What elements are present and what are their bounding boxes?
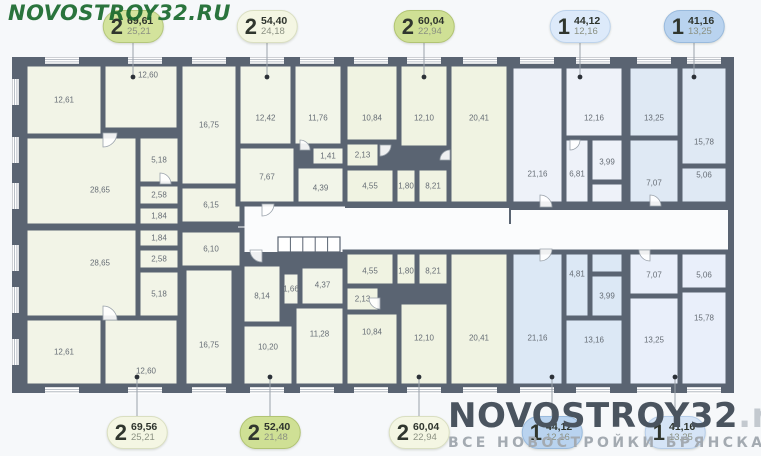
living-area: 25,21 <box>131 433 157 443</box>
badge-areas: 44,1212,16 <box>574 16 600 38</box>
room-area-label: 5,18 <box>151 290 167 299</box>
room-area-label: 8,14 <box>254 292 270 301</box>
window-glass <box>637 387 671 394</box>
room-area-label: 13,25 <box>644 336 665 345</box>
window <box>192 387 226 394</box>
window-glass <box>576 57 610 64</box>
apt-top-5: 13,2515,787,075,06 <box>628 66 728 204</box>
entrance-dot <box>135 375 140 380</box>
room-area-label: 6,10 <box>203 245 219 254</box>
room[interactable] <box>511 66 564 204</box>
rooms-count: 2 <box>115 422 127 444</box>
window <box>407 387 441 394</box>
window <box>12 79 18 105</box>
floor-plan: 12,6112,6028,655,182,581,846,1516,7512,4… <box>0 0 761 456</box>
room-area-label: 7,07 <box>646 271 662 280</box>
entrance-dot <box>265 75 270 80</box>
apartment-badge[interactable]: 141,1613,25 <box>664 10 725 43</box>
apartment-badge[interactable]: 254,4024,18 <box>237 10 298 43</box>
window-glass <box>12 287 18 313</box>
room-area-label: 5,06 <box>696 171 712 180</box>
window-glass <box>463 387 497 394</box>
window-glass <box>45 387 79 394</box>
badge-areas: 60,0422,94 <box>418 16 444 38</box>
window <box>520 57 554 64</box>
window <box>128 387 162 394</box>
room[interactable] <box>680 66 728 166</box>
room[interactable] <box>345 64 399 142</box>
room-area-label: 13,16 <box>584 336 605 345</box>
room-area-label: 1,66 <box>283 285 299 294</box>
window <box>45 387 79 394</box>
window <box>463 387 497 394</box>
living-area: 22,94 <box>413 433 439 443</box>
room[interactable] <box>293 64 343 146</box>
rooms-count: 2 <box>248 422 260 444</box>
room[interactable] <box>184 268 234 386</box>
apartment-badge[interactable]: 252,4021,48 <box>240 416 301 449</box>
window <box>687 57 721 64</box>
room[interactable] <box>564 66 624 138</box>
room-area-label: 3,99 <box>599 292 615 301</box>
living-area: 22,94 <box>418 27 444 37</box>
badge-areas: 60,0422,94 <box>413 422 439 444</box>
room-area-label: 12,42 <box>255 114 276 123</box>
window-glass <box>354 57 388 64</box>
room[interactable] <box>294 306 345 386</box>
window-glass <box>637 57 671 64</box>
entrance-dot <box>550 375 555 380</box>
room[interactable] <box>680 290 728 386</box>
window <box>192 57 226 64</box>
apt-top-3: 10,8412,1020,412,134,551,808,21 <box>345 64 509 204</box>
room-area-label: 20,41 <box>469 114 490 123</box>
window <box>12 137 18 163</box>
apt-top-4: 21,1612,166,813,99 <box>511 66 624 204</box>
room-area-label: 2,13 <box>355 295 371 304</box>
room[interactable] <box>345 312 399 386</box>
window-glass <box>520 57 554 64</box>
window-glass <box>520 387 554 394</box>
apt-bottom-2: 16,758,141,664,3710,2011,28 <box>184 264 345 386</box>
room[interactable] <box>449 252 509 386</box>
room-area-label: 1,84 <box>151 234 167 243</box>
window-glass <box>407 387 441 394</box>
window-glass <box>192 387 226 394</box>
window <box>637 57 671 64</box>
window <box>45 57 79 64</box>
room-area-label: 1,80 <box>398 267 414 276</box>
room-area-label: 6,15 <box>203 201 219 210</box>
rooms-count: 2 <box>245 16 257 38</box>
apartment-badge[interactable]: 269,5625,21 <box>107 416 168 449</box>
window <box>12 183 18 209</box>
room-area-label: 28,65 <box>90 186 111 195</box>
room-area-label: 10,84 <box>362 114 383 123</box>
room-area-label: 11,76 <box>308 114 328 123</box>
window <box>576 387 610 394</box>
room[interactable] <box>564 318 624 386</box>
room-area-label: 21,16 <box>527 170 548 179</box>
room-area-label: 20,41 <box>469 334 490 343</box>
apt-bottom-5: 7,075,0613,2515,78 <box>628 252 728 386</box>
window-glass <box>192 57 226 64</box>
apt-bottom-4: 21,164,813,9913,16 <box>511 252 624 386</box>
entrance-dot <box>692 75 697 80</box>
entrance-dot <box>422 75 427 80</box>
room-area-label: 11,28 <box>310 330 330 339</box>
entrance-dot <box>578 75 583 80</box>
badge-areas: 52,4021,48 <box>264 422 290 444</box>
room-area-label: 12,61 <box>54 348 75 357</box>
apartment-badge[interactable]: 260,0422,94 <box>389 416 450 449</box>
window-glass <box>463 57 497 64</box>
window <box>12 287 18 313</box>
apt-bottom-3: 4,551,808,212,1310,8412,1020,41 <box>345 252 509 386</box>
room-area-label: 7,07 <box>646 179 662 188</box>
window-glass <box>300 387 334 394</box>
room-area-label: 15,78 <box>694 314 715 323</box>
rooms-count: 1 <box>558 16 570 38</box>
corridor <box>345 208 509 252</box>
room-area-label: 1,41 <box>320 152 336 161</box>
window <box>463 57 497 64</box>
room[interactable] <box>399 302 449 386</box>
window-glass <box>12 137 18 163</box>
room-area-label: 15,78 <box>694 138 715 147</box>
rooms-count: 2 <box>402 16 414 38</box>
window-glass <box>300 57 334 64</box>
room-area-label: 12,60 <box>138 71 159 80</box>
living-area: 13,25 <box>688 27 714 37</box>
window-glass <box>12 183 18 209</box>
apartment-badge[interactable]: 260,0422,94 <box>394 10 455 43</box>
room-area-label: 12,61 <box>54 96 75 105</box>
window <box>300 57 334 64</box>
window <box>354 387 388 394</box>
window <box>300 387 334 394</box>
room-area-label: 3,99 <box>599 158 615 167</box>
room-area-label: 1,80 <box>398 182 414 191</box>
apt-top-2: 16,7512,4211,767,671,414,39 <box>180 64 345 204</box>
corridor <box>511 210 728 252</box>
room-area-label: 12,10 <box>414 114 435 123</box>
room-area-label: 8,21 <box>425 267 441 276</box>
window-glass <box>576 387 610 394</box>
room-area-label: 4,55 <box>362 182 378 191</box>
room-area-label: 5,06 <box>696 271 712 280</box>
room-area-label: 1,84 <box>151 212 167 221</box>
room[interactable] <box>25 228 138 318</box>
room-area-label: 6,81 <box>569 170 585 179</box>
room[interactable] <box>564 252 590 318</box>
living-area: 21,48 <box>264 433 290 443</box>
room[interactable] <box>511 252 564 386</box>
watermark-subtitle: ВСЕ НОВОСТРОЙКИ БРЯНСКА <box>448 436 761 450</box>
room-area-label: 4,37 <box>315 281 331 290</box>
room-area-label: 12,10 <box>414 334 435 343</box>
room-area-label: 12,60 <box>136 367 157 376</box>
rooms-count: 1 <box>672 16 684 38</box>
window-glass <box>250 387 284 394</box>
room[interactable] <box>628 66 680 138</box>
entrance-dot <box>417 375 422 380</box>
room-area-label: 4,55 <box>362 267 378 276</box>
room[interactable] <box>25 136 138 226</box>
room-area-label: 13,25 <box>644 114 665 123</box>
room-area-label: 8,21 <box>425 182 441 191</box>
window <box>12 245 18 271</box>
watermark-bottom: NOVOSTROY32.ru ВСЕ НОВОСТРОЙКИ БРЯНСКА <box>448 399 761 450</box>
window <box>520 387 554 394</box>
window-glass <box>128 387 162 394</box>
room[interactable] <box>449 64 509 204</box>
window-glass <box>12 339 18 365</box>
room-area-label: 7,67 <box>259 173 275 182</box>
window-glass <box>687 57 721 64</box>
window-glass <box>354 387 388 394</box>
badge-areas: 41,1613,25 <box>688 16 714 38</box>
window <box>12 339 18 365</box>
room-area-label: 2,58 <box>151 191 167 200</box>
room-area-label: 21,16 <box>527 334 548 343</box>
window <box>576 57 610 64</box>
room-area-label: 16,75 <box>199 341 220 350</box>
room-area-label: 2,13 <box>355 151 371 160</box>
room[interactable] <box>628 138 680 204</box>
living-area: 24,18 <box>261 27 287 37</box>
window <box>250 387 284 394</box>
room-area-label: 16,75 <box>199 121 220 130</box>
window <box>637 387 671 394</box>
watermark-logo-suffix: .ru <box>738 396 761 436</box>
watermark-top: NOVOSTROY32.RU <box>8 1 231 25</box>
window-glass <box>12 79 18 105</box>
room-area-label: 4,39 <box>313 184 329 193</box>
entrance-dot <box>131 75 136 80</box>
living-area: 12,16 <box>574 27 600 37</box>
entrance-dot <box>268 375 273 380</box>
window-glass <box>12 245 18 271</box>
room-area-label: 12,16 <box>584 114 605 123</box>
room-area-label: 10,84 <box>362 328 383 337</box>
room-area-label: 10,20 <box>258 343 279 352</box>
watermark-logo: NOVOSTROY32.ru <box>448 399 761 433</box>
stairs <box>278 237 340 252</box>
entrance-dot <box>673 375 678 380</box>
living-area: 25,21 <box>127 27 153 37</box>
badge-areas: 69,5625,21 <box>131 422 157 444</box>
room-area-label: 5,18 <box>151 156 167 165</box>
room-area-label: 4,81 <box>569 270 585 279</box>
apartment-badge[interactable]: 144,1212,16 <box>550 10 611 43</box>
window <box>687 387 721 394</box>
room-area-label: 2,58 <box>151 255 167 264</box>
room[interactable] <box>103 318 179 386</box>
floorplan-page: 12,6112,6028,655,182,581,846,1516,7512,4… <box>0 0 761 456</box>
room-area-label: 28,65 <box>90 259 111 268</box>
window-glass <box>687 387 721 394</box>
window-glass <box>45 57 79 64</box>
window <box>354 57 388 64</box>
rooms-count: 2 <box>397 422 409 444</box>
badge-areas: 54,4024,18 <box>261 16 287 38</box>
